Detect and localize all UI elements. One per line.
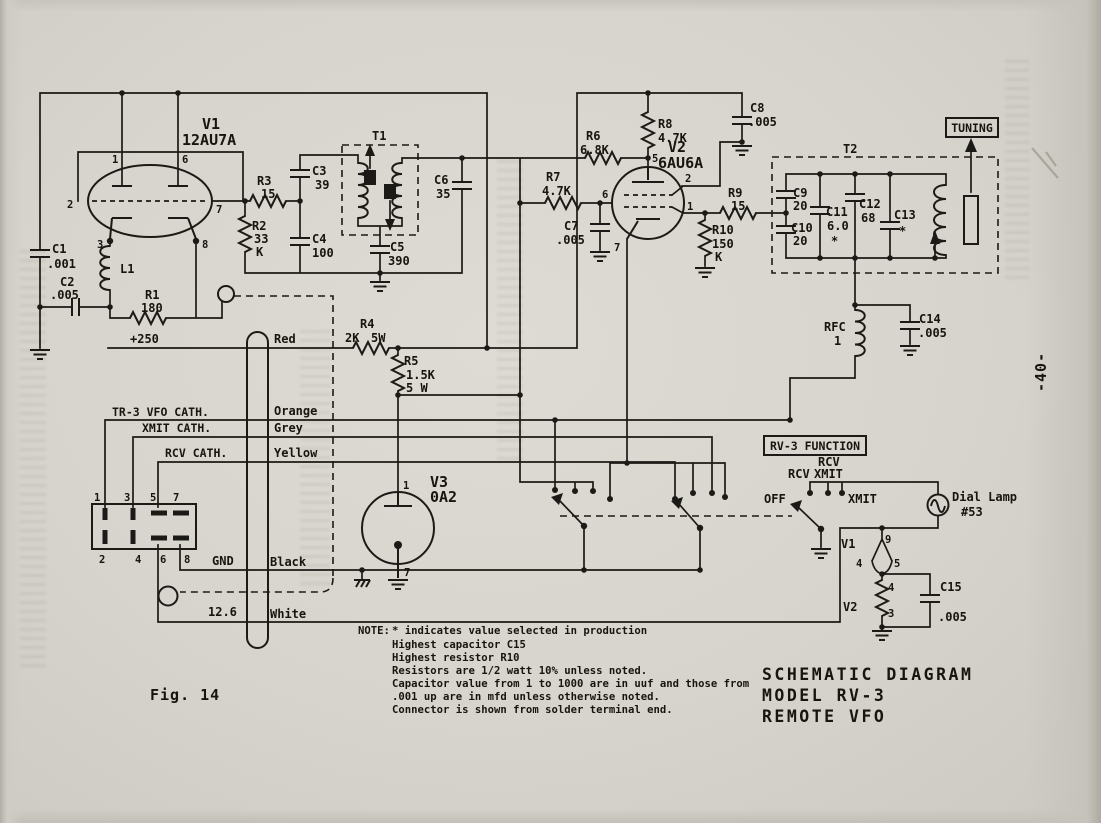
c12-ref: C12 — [859, 197, 881, 211]
function-switch-label: RV-3 FUNCTION — [770, 439, 860, 453]
c6-value: 35 — [436, 187, 450, 201]
heater-v1-pin9: 9 — [885, 534, 891, 546]
c12-value: 68 — [861, 211, 875, 225]
c15-ref: C15 — [940, 580, 962, 594]
note-line: .001 up are in mfd unless otherwise note… — [392, 691, 660, 703]
c14-value: .005 — [918, 326, 947, 340]
dial-lamp — [928, 495, 949, 516]
v2-heater-symbol — [876, 580, 888, 616]
r9-ref: R9 — [728, 186, 742, 200]
r5-ref: R5 — [404, 354, 418, 368]
c8-value: .005 — [748, 115, 777, 129]
c4-value: 100 — [312, 246, 334, 260]
heater-v2-pin3: 3 — [888, 608, 894, 620]
l1-ref: L1 — [120, 262, 134, 276]
c11-ref: C11 — [826, 205, 848, 219]
r6-ref: R6 — [586, 129, 600, 143]
v1-pin3: 3 — [97, 239, 103, 251]
c9-ref: C9 — [793, 186, 807, 200]
tuning-label: TUNING — [951, 121, 993, 135]
r4-ref: R4 — [360, 317, 374, 331]
tuning-arrow-head — [965, 138, 977, 152]
v1-pin6: 6 — [182, 154, 188, 166]
octal-connector — [92, 286, 268, 648]
conn-pin1: 1 — [94, 492, 100, 504]
c5-ref: C5 — [390, 240, 404, 254]
c10-value: 20 — [793, 234, 807, 248]
tube-envelopes — [88, 165, 684, 578]
resistor-r7-symbol — [545, 197, 581, 209]
chassis-ground-symbol — [354, 580, 370, 587]
r1-ref: R1 — [145, 288, 159, 302]
v1-pin2: 2 — [67, 199, 73, 211]
r3-value: 15 — [261, 187, 275, 201]
c11-value: 6.0 — [827, 219, 849, 233]
capacitor-c5-symbol — [370, 246, 390, 253]
v3-pin7: 7 — [404, 567, 410, 579]
capacitor-c4-symbol — [290, 238, 310, 245]
v1-pin1: 1 — [112, 154, 118, 166]
capacitor-c13-symbol — [880, 222, 900, 229]
note-line: Capacitor value from 1 to 1000 are in uu… — [392, 678, 749, 690]
heater-v1-pin4: 4 — [856, 558, 862, 570]
note-line: Highest resistor R10 — [392, 652, 520, 664]
conn-pin6: 6 — [160, 554, 166, 566]
pos-off: OFF — [764, 492, 786, 506]
c3-value: 39 — [315, 178, 329, 192]
c7-ref: C7 — [564, 219, 578, 233]
t2-ref: T2 — [843, 142, 857, 156]
c13-ref: C13 — [894, 208, 916, 222]
c11-star: * — [831, 234, 838, 248]
c2-value: .005 — [50, 288, 79, 302]
rfc-ref: RFC — [824, 320, 846, 334]
conn-pin5: 5 — [150, 492, 156, 504]
conn-pin8: 8 — [184, 554, 190, 566]
heater-v2-pin4: 4 — [888, 582, 894, 594]
note-line: Connector is shown from solder terminal … — [392, 704, 673, 716]
pencil-mark — [1032, 148, 1058, 178]
r10-value1: 150 — [712, 237, 734, 251]
v3-pin1: 1 — [403, 480, 409, 492]
wire-orange-label: Orange — [274, 404, 317, 418]
grommet — [218, 286, 234, 302]
conn-pin4: 4 — [135, 554, 141, 566]
r4-value1: 2K — [345, 331, 360, 345]
capacitor-c1-symbol — [30, 250, 50, 257]
title-line-3: REMOTE VFO — [762, 707, 886, 726]
c14-ref: C14 — [919, 312, 941, 326]
rcv-cath-label: RCV CATH. — [165, 446, 227, 460]
v2-type: 6AU6A — [658, 154, 703, 172]
capacitor-c3-symbol — [290, 170, 310, 177]
page-number: -40- — [1032, 352, 1050, 392]
c2-ref: C2 — [60, 275, 74, 289]
c1-ref: C1 — [52, 242, 66, 256]
wire-red-label: Red — [274, 332, 296, 346]
capacitor-c6-symbol — [452, 182, 472, 189]
v1-pin7: 7 — [216, 204, 222, 216]
note-line: Highest capacitor C15 — [392, 639, 526, 651]
r6-value: 6.8K — [580, 143, 610, 157]
capacitor-c7-symbol — [590, 224, 610, 231]
cable-bundle — [247, 332, 268, 648]
heater-v1-ref: V1 — [841, 537, 855, 551]
pos-xmit: XMIT — [848, 492, 877, 506]
schematic-text: V1 12AU7A 1 6 2 7 3 8 C1 .001 C2 .005 L1… — [47, 101, 1050, 726]
inductor-l1-symbol — [100, 246, 110, 290]
conn-pin7: 7 — [173, 492, 179, 504]
t2-tuning-slug — [964, 196, 978, 244]
c7-value: .005 — [556, 233, 585, 247]
conn-pin2: 2 — [99, 554, 105, 566]
grommet — [159, 587, 178, 606]
wire-yellow-label: Yellow — [274, 446, 318, 460]
c8-ref: C8 — [750, 101, 764, 115]
c5-value: 390 — [388, 254, 410, 268]
resistor-r10-symbol — [699, 220, 711, 256]
title-line-2: MODEL RV-3 — [762, 686, 886, 705]
pos-rcv: RCV — [788, 467, 810, 481]
r8-value: 4.7K — [658, 131, 688, 145]
c9-value: 20 — [793, 199, 807, 213]
v3-type: 0A2 — [430, 488, 457, 506]
c13-star: * — [899, 224, 906, 238]
c6-ref: C6 — [434, 173, 448, 187]
c10-ref: C10 — [791, 221, 813, 235]
rfc-coil-symbol — [855, 310, 865, 356]
note-line: Resistors are 1/2 watt 10% unless noted. — [392, 665, 647, 677]
r3-ref: R3 — [257, 174, 271, 188]
r2-ref: R2 — [252, 219, 266, 233]
r8-ref: R8 — [658, 117, 672, 131]
note-heading: NOTE: — [358, 625, 390, 637]
v1-type: 12AU7A — [182, 131, 236, 149]
schematic-canvas: V1 12AU7A 1 6 2 7 3 8 C1 .001 C2 .005 L1… — [0, 0, 1101, 823]
vfo-cath-label: TR-3 VFO CATH. — [112, 405, 209, 419]
r2-value1: 33 — [254, 232, 268, 246]
r1-value: 180 — [141, 301, 163, 315]
title-line-1: SCHEMATIC DIAGRAM — [762, 665, 973, 684]
r7-ref: R7 — [546, 170, 560, 184]
c4-ref: C4 — [312, 232, 326, 246]
wire-white-label: White — [270, 607, 306, 621]
c1-value: .001 — [47, 257, 76, 271]
heater-volts-label: 12.6 — [208, 605, 237, 619]
wire-black-label: Black — [270, 555, 307, 569]
r10-value2: K — [715, 250, 723, 264]
label-boxes — [764, 118, 998, 455]
capacitor-c14-symbol — [900, 322, 920, 329]
c15-value: .005 — [938, 610, 967, 624]
dial-lamp-label: Dial Lamp — [952, 490, 1017, 504]
r9-value: 15 — [731, 199, 745, 213]
figure-caption: Fig. 14 — [150, 686, 220, 704]
r5-value1: 1.5K — [406, 368, 436, 382]
pos-rcv-xmit-2: XMIT — [814, 467, 843, 481]
heater-v2-ref: V2 — [843, 600, 857, 614]
conn-pin3: 3 — [124, 492, 130, 504]
v2-pin6: 6 — [602, 189, 608, 201]
v2-pin7: 7 — [614, 242, 620, 254]
resistor-r2-symbol — [239, 216, 251, 252]
c3-ref: C3 — [312, 164, 326, 178]
r2-value2: K — [256, 245, 264, 259]
capacitor-c15-symbol — [920, 595, 940, 602]
t2-coil — [934, 185, 946, 255]
t1-ref: T1 — [372, 129, 386, 143]
note-line: * indicates value selected in production — [392, 625, 647, 637]
v2-pin1: 1 — [687, 201, 693, 213]
dial-lamp-number: #53 — [961, 505, 983, 519]
r4-value2: 5W — [371, 331, 386, 345]
gnd-label: GND — [212, 554, 234, 568]
rfc-value: 1 — [834, 334, 841, 348]
heater-v1-pin5: 5 — [894, 558, 900, 570]
t2-tap-arrow — [930, 230, 940, 244]
r7-value: 4.7K — [542, 184, 572, 198]
v2-pin5: 5 — [652, 153, 658, 165]
wire-grey-label: Grey — [274, 421, 303, 435]
resistor-r5-symbol — [392, 355, 404, 391]
scanned-schematic-page: V1 12AU7A 1 6 2 7 3 8 C1 .001 C2 .005 L1… — [0, 0, 1101, 823]
v1-pin8: 8 — [202, 239, 208, 251]
v2-pin2: 2 — [685, 173, 691, 185]
b-plus-label: +250 — [130, 332, 159, 346]
resistor-r8-symbol — [642, 112, 654, 148]
r5-value2: 5 W — [406, 381, 428, 395]
r10-ref: R10 — [712, 223, 734, 237]
xmit-cath-label: XMIT CATH. — [142, 421, 211, 435]
